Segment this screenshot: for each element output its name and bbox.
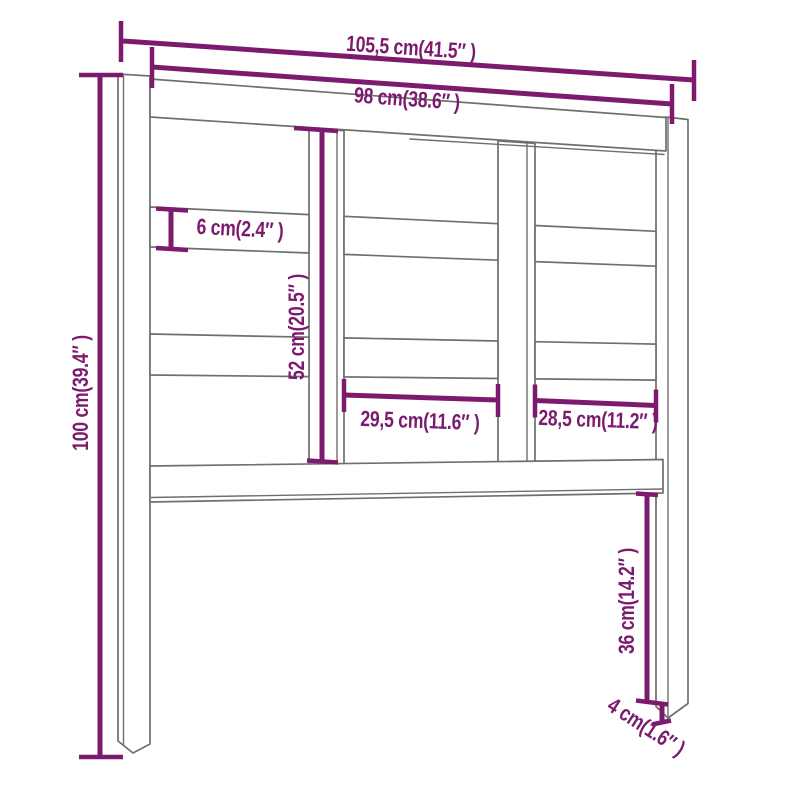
dim-tick-slat-height-bottom [156, 248, 188, 250]
headboard-line-drawing [0, 0, 800, 800]
dim-label-panel-height: 52 cm(20.5″ ) [284, 274, 310, 380]
dim-line-middle-section [344, 395, 498, 400]
horizontal-slat-top-right [535, 226, 656, 267]
vertical-slat-middle [498, 141, 535, 463]
dim-tick-leg-height-top [636, 494, 658, 496]
product-dimension-diagram: 105,5 cm(41.5″ ) 98 cm(38.6″ ) 100 cm(39… [0, 0, 800, 800]
dim-label-middle-section: 29,5 cm(11.6″ ) [360, 406, 480, 436]
horizontal-slat-bottom-right [535, 342, 656, 380]
horizontal-slat-bottom-middle [344, 338, 498, 379]
dim-label-leg-height: 36 cm(14.2″ ) [614, 548, 640, 654]
dim-tick-panel-height-bottom [307, 461, 338, 463]
dim-label-right-section: 28,5 cm(11.2″ ) [538, 405, 658, 435]
dim-tick-slat-height-top [156, 209, 188, 211]
dim-label-slat-height: 6 cm(2.4″ ) [196, 214, 284, 245]
right-post [656, 117, 688, 718]
vertical-slat-left [309, 128, 344, 465]
horizontal-slat-top-middle [344, 216, 498, 260]
dim-label-height: 100 cm(39.4″ ) [68, 335, 94, 451]
dim-tick-panel-height-top [294, 128, 338, 131]
